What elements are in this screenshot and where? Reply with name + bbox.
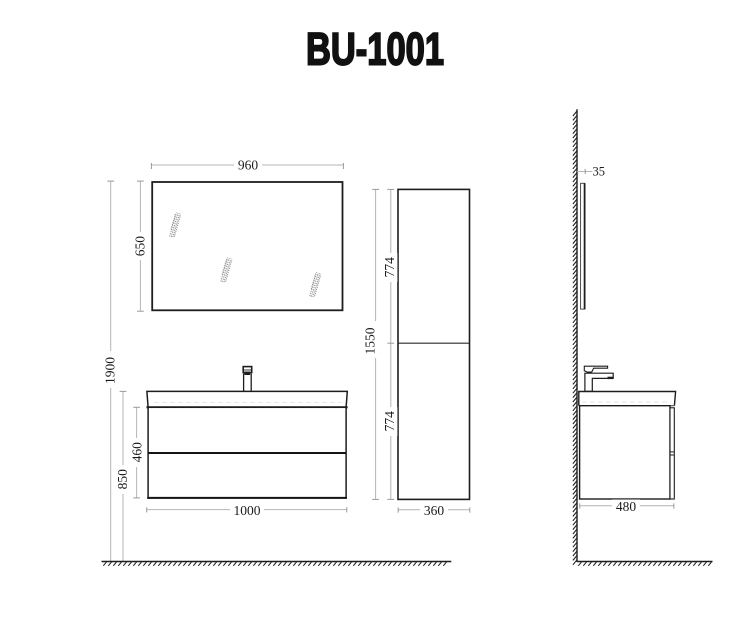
svg-text:460: 460 (129, 442, 144, 463)
svg-text:960: 960 (238, 157, 259, 172)
svg-text:1550: 1550 (363, 327, 378, 354)
svg-text:650: 650 (132, 236, 147, 257)
svg-text:BU-1001: BU-1001 (306, 24, 444, 75)
svg-text:35: 35 (593, 165, 606, 179)
svg-text:774: 774 (382, 257, 397, 278)
svg-text:360: 360 (424, 503, 445, 518)
svg-text:480: 480 (616, 499, 637, 514)
svg-text:850: 850 (115, 469, 130, 490)
svg-text:774: 774 (382, 411, 397, 432)
svg-text:1000: 1000 (234, 503, 261, 518)
svg-text:1900: 1900 (103, 357, 118, 384)
